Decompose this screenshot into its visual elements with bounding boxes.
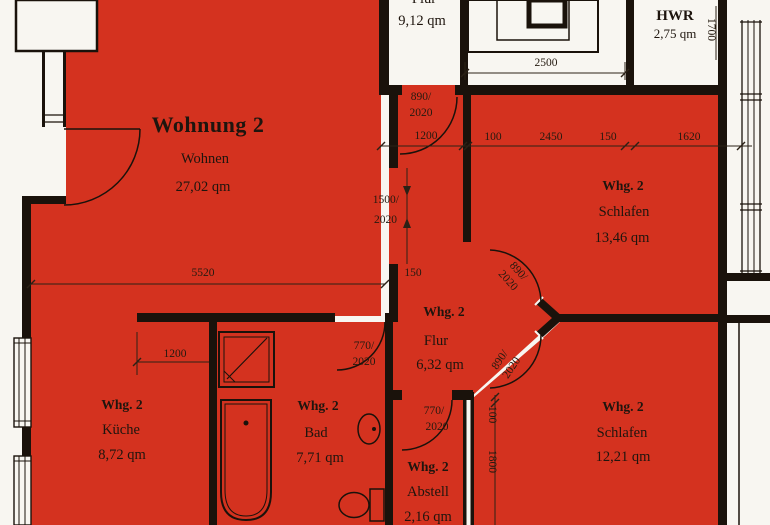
label-schlafen-top-area: 13,46 qm xyxy=(595,230,651,246)
label-kueche-unit: Whg. 2 xyxy=(101,397,143,412)
label-wohnung2-title: Wohnung 2 xyxy=(152,112,265,137)
wall-left-mid xyxy=(22,199,31,338)
wall-right-exterior xyxy=(718,0,727,525)
dim-kueche-1200: 1200 xyxy=(164,348,187,360)
dim-hwr-depth: 1700 xyxy=(705,18,717,41)
dim-bad-door-w: 770/ xyxy=(354,340,375,352)
wall-abstell-top-left-stub xyxy=(393,390,402,400)
dim-entry-opening: 1200 xyxy=(415,130,438,142)
dim-wohnen-width: 5520 xyxy=(192,267,215,279)
dim-passage-h: 2020 xyxy=(374,214,397,226)
dim-top-1620: 1620 xyxy=(678,131,701,143)
floorplan-scan: Flur 9,12 qm 2500 HWR 2,75 qm 1700 Wohnu… xyxy=(0,0,770,525)
wall-stairblock-bottom xyxy=(455,85,727,95)
label-bad-name: Bad xyxy=(304,425,328,441)
label-flur-area: 6,32 qm xyxy=(416,357,464,373)
dim-top-150: 150 xyxy=(599,131,617,143)
dim-stair-bay: 2500 xyxy=(535,57,558,69)
window-left-upper xyxy=(14,338,31,427)
label-schlafen-bottom-area: 12,21 qm xyxy=(596,449,652,465)
dim-entry-door-w: 890/ xyxy=(411,91,432,103)
wall-wohnen-bottom-right-stub xyxy=(385,313,398,322)
dim-right-v1800: 1800 xyxy=(486,450,498,473)
sink-drain xyxy=(372,427,376,431)
label-hwr-area: 2,75 qm xyxy=(654,26,697,41)
label-stairhall-name: Flur xyxy=(412,0,436,7)
wall-between-schlafen xyxy=(553,314,718,322)
wall-kueche-bad xyxy=(209,322,217,525)
room-staircase-fill xyxy=(466,0,626,88)
wall-abstell-schlafen-core xyxy=(467,400,471,525)
wall-right-stub-upper xyxy=(727,273,770,281)
label-wohnen-area: 27,02 qm xyxy=(176,179,232,195)
corner-window-block xyxy=(16,0,97,51)
room-bad-fill xyxy=(217,322,385,525)
dim-bad-door-h: 2020 xyxy=(353,356,376,368)
wall-schlafen-top-left xyxy=(463,95,471,242)
dim-abstell-door-w: 770/ xyxy=(424,405,445,417)
label-abstell-area: 2,16 qm xyxy=(404,509,452,525)
label-schlafen-bottom-unit: Whg. 2 xyxy=(602,399,644,414)
wall-left-step xyxy=(22,196,66,204)
dim-abstell-door-h: 2020 xyxy=(426,421,449,433)
label-abstell-unit: Whg. 2 xyxy=(407,459,449,474)
window-left-lower xyxy=(14,456,31,525)
label-flur-unit: Whg. 2 xyxy=(423,304,465,319)
label-wohnen-name: Wohnen xyxy=(181,151,230,167)
label-schlafen-top-unit: Whg. 2 xyxy=(602,178,644,193)
wall-right-stub-lower xyxy=(727,315,770,323)
dim-wall-150: 150 xyxy=(404,267,422,279)
wall-wohnen-bottom xyxy=(137,313,335,322)
label-schlafen-top-name: Schlafen xyxy=(599,204,650,220)
wall-stairs-hwr xyxy=(626,0,634,86)
dim-passage-w: 1500/ xyxy=(373,194,400,206)
label-bad-area: 7,71 qm xyxy=(296,450,344,466)
wall-entry-strip-upper xyxy=(389,95,398,168)
wall-stairhall-left xyxy=(379,0,389,95)
label-hwr-name: HWR xyxy=(656,8,694,24)
label-kueche-area: 8,72 qm xyxy=(98,447,146,463)
dim-top-100: 100 xyxy=(484,131,502,143)
label-bad-unit: Whg. 2 xyxy=(297,398,339,413)
label-schlafen-bottom-name: Schlafen xyxy=(597,425,648,441)
bathtub-drain xyxy=(244,421,249,426)
wall-top-stub-left-of-entry xyxy=(389,85,402,95)
wall-left-between-windows xyxy=(22,427,31,456)
label-flur-name: Flur xyxy=(424,333,448,349)
label-stairhall-area: 9,12 qm xyxy=(398,13,446,29)
dim-top-2450: 2450 xyxy=(540,131,563,143)
label-kueche-name: Küche xyxy=(102,422,140,438)
wall-bad-right xyxy=(385,322,393,525)
floorplan-svg: Flur 9,12 qm 2500 HWR 2,75 qm 1700 Wohnu… xyxy=(0,0,770,525)
dim-right-v100: 100 xyxy=(486,406,498,424)
dim-entry-door-h: 2020 xyxy=(410,107,433,119)
label-abstell-name: Abstell xyxy=(407,484,449,500)
